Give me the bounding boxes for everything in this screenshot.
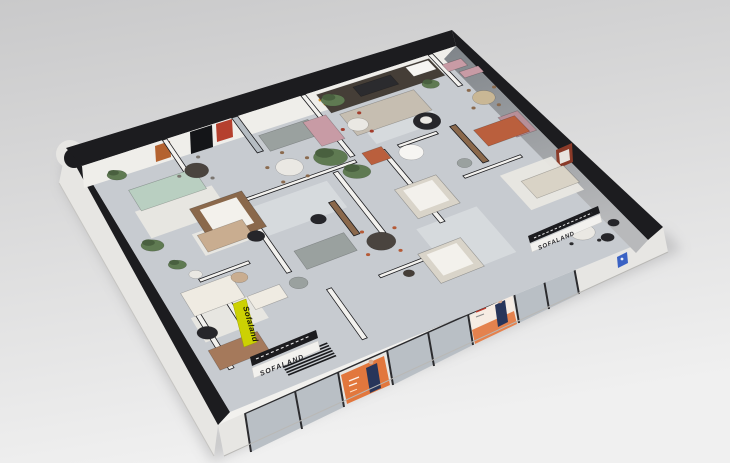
beanbag-gray <box>289 277 308 289</box>
dining-table-red-chairs <box>341 128 345 131</box>
chair-black-a <box>601 233 614 241</box>
plant-topright <box>423 79 433 84</box>
dining-table-topright <box>467 89 471 92</box>
plant-center-low <box>344 164 359 172</box>
plant-left-mid <box>142 239 155 245</box>
dining-table-den <box>210 177 214 180</box>
coffee-table-white <box>420 116 432 124</box>
dining-table-topright <box>471 107 475 110</box>
mirror-oval <box>189 270 203 278</box>
plant-center-low <box>343 164 371 178</box>
coat-rack <box>403 270 414 277</box>
dining-table-topright <box>472 90 495 104</box>
dining-table-dark-orange-chairs <box>398 249 402 252</box>
floorplan-render: SOFALAND SOFALAND Sofaland <box>0 0 730 463</box>
dining-table-topright <box>497 103 501 106</box>
chair-black-b <box>608 219 620 226</box>
dining-table-round-white <box>281 181 285 184</box>
dining-table-dark-orange-chairs <box>392 226 396 229</box>
dining-table-red-chairs <box>370 130 374 133</box>
plant-center-tall <box>315 148 334 158</box>
plant-top <box>321 94 345 106</box>
plant-bottomleft <box>168 260 186 269</box>
dining-table-den <box>185 163 209 178</box>
dining-table-round-white <box>280 151 284 154</box>
plaque-glyph <box>621 258 624 261</box>
pouf-gray <box>457 158 472 167</box>
bathtub-white <box>399 145 424 160</box>
dining-table-dark-orange-chairs <box>360 231 364 234</box>
plant-bottomleft <box>169 260 179 265</box>
egg-chair-black <box>197 326 218 339</box>
chair-black-b <box>608 219 620 226</box>
beanbag-gray <box>289 277 308 289</box>
dining-table-right <box>569 242 573 245</box>
dining-table-round-white <box>305 156 309 159</box>
plant-west <box>108 170 119 176</box>
egg-chair-black <box>197 326 218 339</box>
coffee-table-black-a <box>247 231 265 242</box>
dining-table-dark-orange-chairs <box>367 232 396 250</box>
plant-west <box>107 170 127 180</box>
plant-top <box>322 94 335 101</box>
coffee-table-black-b <box>310 214 326 224</box>
mirror-oval <box>189 270 203 278</box>
chair-black-a <box>601 233 614 241</box>
coffee-table-white <box>420 116 432 124</box>
pouf-gray <box>457 158 472 167</box>
dining-table-den <box>177 175 181 178</box>
coffee-table-black-a <box>247 231 265 242</box>
dining-table-red-chairs <box>347 118 368 131</box>
plant-topright <box>422 79 440 88</box>
bathtub-white <box>399 145 424 160</box>
poster-figure-head <box>369 360 374 365</box>
dining-table-round-white <box>265 166 269 169</box>
dining-table-dark-orange-chairs <box>366 253 370 256</box>
dining-table-round-white <box>306 174 310 177</box>
chair-rattan <box>231 272 248 283</box>
dining-table-den <box>196 156 200 159</box>
plant-left-mid <box>141 239 164 251</box>
dining-table-right <box>597 239 601 242</box>
chair-rattan <box>231 272 248 283</box>
coffee-table-black-b <box>310 214 326 224</box>
floorplan-render-stage: SOFALAND SOFALAND Sofaland <box>0 0 730 463</box>
dining-table-round-white <box>276 159 304 176</box>
dining-table-red-chairs <box>357 111 361 114</box>
coat-rack <box>403 270 414 277</box>
dining-table-topright <box>492 86 496 89</box>
